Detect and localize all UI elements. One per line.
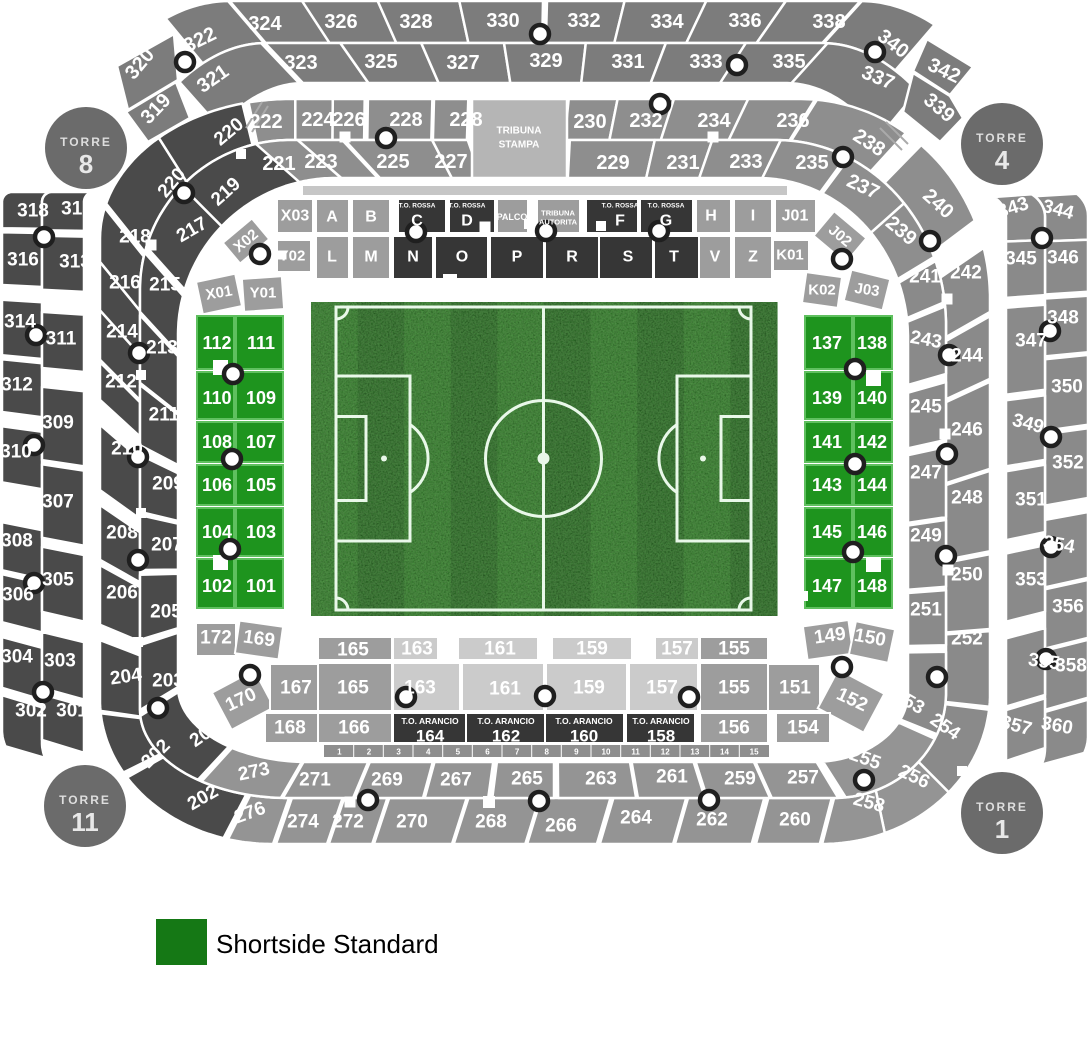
svg-text:215: 215: [149, 275, 181, 296]
svg-text:211: 211: [149, 405, 180, 426]
svg-text:T.O. ARANCIO: T.O. ARANCIO: [477, 716, 535, 726]
svg-text:15: 15: [750, 748, 759, 757]
svg-text:102: 102: [202, 576, 232, 596]
svg-text:K01: K01: [776, 247, 804, 264]
svg-text:264: 264: [620, 808, 652, 829]
svg-text:104: 104: [202, 522, 232, 542]
svg-text:S: S: [623, 249, 634, 266]
svg-text:242: 242: [950, 263, 982, 284]
svg-text:7: 7: [515, 748, 520, 757]
svg-text:309: 309: [42, 413, 74, 434]
svg-text:147: 147: [812, 576, 842, 596]
svg-text:323: 323: [284, 52, 317, 74]
svg-text:R: R: [566, 249, 578, 266]
svg-text:TRIBUNA: TRIBUNA: [541, 209, 575, 218]
svg-text:149: 149: [813, 623, 847, 648]
svg-text:166: 166: [338, 718, 370, 739]
svg-text:158: 158: [647, 727, 675, 746]
svg-text:TORRE: TORRE: [976, 131, 1028, 145]
svg-text:331: 331: [611, 51, 644, 73]
svg-text:214: 214: [106, 322, 138, 343]
svg-text:347: 347: [1015, 331, 1047, 352]
svg-text:233: 233: [729, 151, 762, 173]
svg-text:223: 223: [304, 151, 337, 173]
svg-text:144: 144: [857, 475, 887, 495]
svg-text:311: 311: [46, 329, 77, 350]
svg-text:350: 350: [1051, 377, 1083, 398]
svg-text:356: 356: [1052, 597, 1084, 618]
svg-text:L: L: [327, 249, 337, 266]
svg-text:143: 143: [812, 475, 842, 495]
svg-text:306: 306: [2, 585, 34, 606]
svg-text:142: 142: [857, 432, 887, 452]
svg-text:257: 257: [787, 768, 819, 789]
svg-text:346: 346: [1047, 248, 1079, 269]
svg-text:TRIBUNA: TRIBUNA: [497, 126, 542, 137]
svg-text:165: 165: [337, 678, 369, 699]
svg-text:TORRE: TORRE: [60, 135, 112, 149]
svg-text:251: 251: [910, 600, 942, 621]
svg-text:105: 105: [246, 475, 276, 495]
svg-text:161: 161: [489, 679, 521, 700]
svg-text:244: 244: [951, 346, 983, 367]
svg-text:230: 230: [573, 111, 606, 133]
svg-text:4: 4: [995, 145, 1010, 175]
svg-text:B: B: [365, 209, 377, 226]
svg-text:318: 318: [17, 201, 49, 222]
svg-text:324: 324: [248, 13, 282, 35]
svg-text:301: 301: [56, 701, 88, 722]
svg-text:J03: J03: [853, 280, 880, 300]
svg-text:AUTORITA: AUTORITA: [539, 218, 578, 227]
svg-text:314: 314: [4, 312, 36, 333]
svg-text:T.O. ARANCIO: T.O. ARANCIO: [632, 716, 690, 726]
svg-text:161: 161: [484, 639, 516, 660]
svg-text:A: A: [326, 209, 338, 226]
svg-text:141: 141: [812, 432, 842, 452]
svg-text:334: 334: [650, 11, 684, 33]
svg-text:313: 313: [59, 252, 91, 273]
svg-text:241: 241: [909, 267, 941, 288]
svg-text:V: V: [710, 249, 721, 266]
svg-text:245: 245: [910, 397, 942, 418]
svg-text:154: 154: [787, 718, 819, 739]
svg-text:O: O: [456, 249, 468, 266]
svg-text:203: 203: [152, 671, 184, 692]
svg-text:209: 209: [152, 474, 184, 495]
svg-text:K02: K02: [808, 282, 836, 299]
svg-text:247: 247: [910, 463, 942, 484]
svg-text:212: 212: [105, 372, 137, 393]
svg-text:303: 303: [44, 651, 76, 672]
svg-text:308: 308: [1, 531, 33, 552]
svg-text:159: 159: [576, 639, 608, 660]
svg-text:155: 155: [718, 639, 750, 660]
svg-text:315: 315: [61, 199, 93, 220]
svg-text:304: 304: [1, 647, 33, 668]
svg-text:M: M: [364, 249, 377, 266]
svg-text:260: 260: [779, 810, 811, 831]
svg-text:148: 148: [857, 576, 887, 596]
svg-text:159: 159: [573, 678, 605, 699]
svg-text:168: 168: [274, 718, 306, 739]
svg-text:14: 14: [720, 748, 729, 757]
svg-text:332: 332: [567, 10, 600, 32]
svg-text:146: 146: [857, 522, 887, 542]
svg-text:TORRE: TORRE: [976, 800, 1028, 814]
svg-text:155: 155: [718, 678, 750, 699]
svg-text:160: 160: [570, 727, 598, 746]
svg-text:271: 271: [299, 770, 331, 791]
svg-text:352: 352: [1052, 453, 1084, 474]
svg-text:109: 109: [246, 388, 276, 408]
svg-text:137: 137: [812, 333, 842, 353]
svg-text:TORRE: TORRE: [59, 793, 111, 807]
svg-text:101: 101: [246, 576, 276, 596]
svg-text:329: 329: [529, 50, 562, 72]
svg-text:169: 169: [242, 626, 276, 651]
svg-text:307: 307: [42, 492, 74, 513]
svg-text:3: 3: [396, 748, 401, 757]
svg-text:225: 225: [376, 151, 409, 173]
svg-text:316: 316: [7, 250, 39, 271]
svg-text:STAMPA: STAMPA: [499, 140, 540, 151]
svg-text:351: 351: [1015, 490, 1047, 511]
svg-text:312: 312: [1, 375, 33, 396]
svg-text:T.O. ROSSA: T.O. ROSSA: [449, 203, 486, 210]
svg-text:348: 348: [1047, 308, 1079, 329]
svg-text:T: T: [669, 249, 679, 266]
svg-text:103: 103: [246, 522, 276, 542]
svg-text:335: 335: [772, 51, 805, 73]
svg-text:266: 266: [545, 816, 577, 837]
svg-text:326: 326: [324, 11, 357, 33]
svg-text:157: 157: [661, 639, 693, 660]
svg-text:140: 140: [857, 388, 887, 408]
svg-text:1: 1: [337, 748, 342, 757]
svg-text:156: 156: [718, 718, 750, 739]
svg-text:328: 328: [399, 11, 432, 33]
svg-text:11: 11: [71, 807, 99, 837]
svg-text:D: D: [461, 213, 473, 230]
svg-text:T.O. ARANCIO: T.O. ARANCIO: [401, 716, 459, 726]
svg-text:210: 210: [111, 439, 143, 460]
svg-text:C: C: [411, 213, 423, 230]
svg-text:10: 10: [602, 748, 611, 757]
svg-text:T.O. ROSSA: T.O. ROSSA: [602, 203, 639, 210]
svg-text:248: 248: [951, 488, 983, 509]
svg-text:145: 145: [812, 522, 842, 542]
svg-text:206: 206: [106, 583, 138, 604]
svg-text:302: 302: [15, 701, 47, 722]
svg-text:235: 235: [795, 152, 828, 174]
svg-text:336: 336: [728, 10, 761, 32]
svg-text:13: 13: [690, 748, 699, 757]
svg-text:207: 207: [151, 535, 183, 556]
svg-text:325: 325: [364, 51, 397, 73]
svg-text:358: 358: [1055, 656, 1087, 677]
svg-text:333: 333: [689, 51, 722, 73]
svg-text:205: 205: [150, 602, 182, 623]
svg-text:5: 5: [456, 748, 461, 757]
svg-text:228: 228: [389, 109, 422, 131]
svg-text:T.O. ROSSA: T.O. ROSSA: [648, 203, 685, 210]
svg-text:261: 261: [656, 767, 688, 788]
svg-text:9: 9: [574, 748, 579, 757]
svg-text:246: 246: [951, 420, 983, 441]
svg-text:112: 112: [202, 333, 231, 353]
svg-text:T.O. ARANCIO: T.O. ARANCIO: [555, 716, 613, 726]
svg-text:Y02: Y02: [279, 248, 306, 265]
svg-text:221: 221: [262, 153, 295, 175]
svg-text:11: 11: [631, 748, 640, 757]
svg-text:259: 259: [724, 769, 756, 790]
svg-text:204: 204: [109, 664, 144, 689]
svg-text:107: 107: [246, 432, 276, 452]
svg-text:151: 151: [779, 678, 811, 699]
svg-text:274: 274: [287, 812, 319, 833]
svg-text:270: 270: [396, 812, 428, 833]
svg-text:250: 250: [951, 565, 983, 586]
svg-text:172: 172: [200, 628, 232, 649]
svg-text:353: 353: [1015, 570, 1047, 591]
svg-text:2: 2: [367, 748, 372, 757]
svg-text:PALCO: PALCO: [497, 212, 528, 222]
svg-text:310: 310: [0, 442, 32, 463]
svg-text:216: 216: [109, 273, 141, 294]
svg-text:232: 232: [629, 110, 662, 132]
svg-text:111: 111: [247, 333, 275, 353]
svg-text:252: 252: [951, 629, 983, 650]
svg-text:J01: J01: [782, 208, 809, 225]
svg-text:231: 231: [666, 152, 699, 174]
svg-text:226: 226: [332, 109, 365, 131]
svg-text:165: 165: [337, 640, 369, 661]
svg-text:106: 106: [202, 475, 232, 495]
svg-text:H: H: [705, 208, 717, 225]
svg-text:139: 139: [812, 388, 842, 408]
svg-text:8: 8: [79, 149, 93, 179]
svg-text:164: 164: [416, 727, 445, 746]
svg-text:108: 108: [202, 432, 232, 452]
svg-text:167: 167: [280, 678, 312, 699]
svg-text:218: 218: [119, 227, 151, 248]
svg-text:F: F: [615, 213, 625, 230]
svg-text:4: 4: [426, 748, 431, 757]
svg-text:Shortside Standard: Shortside Standard: [216, 929, 439, 959]
svg-text:110: 110: [202, 388, 231, 408]
svg-text:236: 236: [776, 110, 809, 132]
svg-text:6: 6: [485, 748, 490, 757]
svg-text:267: 267: [440, 770, 472, 791]
svg-text:345: 345: [1005, 249, 1037, 270]
svg-text:162: 162: [492, 727, 520, 746]
svg-text:330: 330: [486, 10, 519, 32]
svg-text:265: 265: [511, 769, 543, 790]
svg-text:213: 213: [146, 338, 178, 359]
svg-text:227: 227: [434, 151, 467, 173]
svg-text:224: 224: [301, 109, 335, 131]
svg-text:Y01: Y01: [250, 285, 277, 302]
svg-text:208: 208: [106, 523, 138, 544]
svg-text:163: 163: [404, 678, 436, 699]
svg-text:234: 234: [697, 110, 731, 132]
svg-text:262: 262: [696, 810, 728, 831]
svg-text:272: 272: [332, 812, 364, 833]
svg-text:228: 228: [449, 109, 482, 131]
svg-text:338: 338: [812, 11, 845, 33]
svg-text:Z: Z: [748, 249, 758, 266]
svg-text:163: 163: [401, 639, 433, 660]
svg-text:305: 305: [42, 570, 74, 591]
svg-text:138: 138: [857, 333, 887, 353]
svg-text:263: 263: [585, 769, 617, 790]
svg-text:X03: X03: [281, 208, 310, 225]
svg-text:1: 1: [995, 814, 1009, 844]
svg-text:269: 269: [371, 770, 403, 791]
svg-text:229: 229: [596, 152, 629, 174]
svg-text:12: 12: [661, 748, 670, 757]
svg-text:8: 8: [544, 748, 549, 757]
svg-text:N: N: [407, 249, 419, 266]
svg-text:T.O. ROSSA: T.O. ROSSA: [399, 203, 436, 210]
svg-text:G: G: [660, 213, 672, 230]
svg-text:157: 157: [646, 678, 678, 699]
svg-text:I: I: [751, 208, 755, 225]
svg-text:222: 222: [249, 111, 282, 133]
svg-text:P: P: [512, 249, 523, 266]
svg-text:268: 268: [475, 812, 507, 833]
svg-text:327: 327: [446, 52, 479, 74]
svg-text:249: 249: [910, 526, 942, 547]
